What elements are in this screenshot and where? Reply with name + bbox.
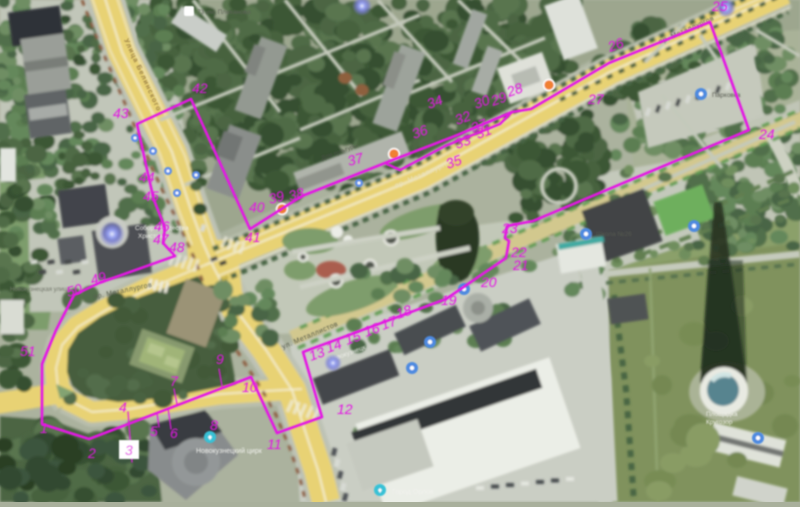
svg-text:41: 41: [245, 229, 261, 245]
svg-text:9: 9: [216, 351, 224, 367]
svg-text:25: 25: [711, 0, 728, 14]
svg-text:19: 19: [441, 292, 457, 308]
svg-text:51: 51: [20, 343, 36, 359]
svg-text:6: 6: [170, 425, 178, 441]
svg-text:Школа №26: Школа №26: [596, 231, 632, 238]
svg-text:Площадка: Площадка: [706, 411, 738, 418]
svg-text:Кругозор: Кругозор: [706, 419, 733, 426]
svg-text:43: 43: [113, 105, 129, 121]
svg-text:4: 4: [119, 399, 127, 415]
svg-text:44: 44: [139, 169, 155, 185]
svg-text:48: 48: [169, 239, 185, 255]
svg-text:7: 7: [170, 373, 179, 389]
svg-text:42: 42: [192, 80, 208, 96]
svg-text:Город Орлов: Город Орлов: [392, 489, 434, 496]
svg-text:8: 8: [210, 417, 218, 433]
svg-text:40: 40: [249, 199, 265, 215]
svg-text:27: 27: [587, 91, 605, 107]
svg-text:11: 11: [267, 436, 282, 452]
svg-text:12: 12: [337, 401, 353, 417]
svg-text:22: 22: [510, 244, 527, 260]
svg-text:10: 10: [242, 379, 258, 395]
svg-text:Новокузнецкий цирк: Новокузнецкий цирк: [196, 447, 263, 455]
svg-text:5: 5: [150, 423, 158, 439]
svg-text:24: 24: [758, 126, 775, 142]
svg-text:3: 3: [125, 442, 133, 458]
svg-text:20: 20: [480, 274, 497, 290]
svg-text:47: 47: [153, 231, 170, 247]
svg-text:Новокузнецкая улица: Новокузнецкая улица: [10, 287, 71, 293]
svg-text:2: 2: [87, 445, 96, 461]
svg-text:23: 23: [501, 220, 518, 236]
svg-text:1: 1: [40, 420, 48, 436]
svg-text:45: 45: [143, 188, 159, 204]
svg-text:73 им. Плеханова: 73 им. Плеханова: [197, 9, 251, 16]
